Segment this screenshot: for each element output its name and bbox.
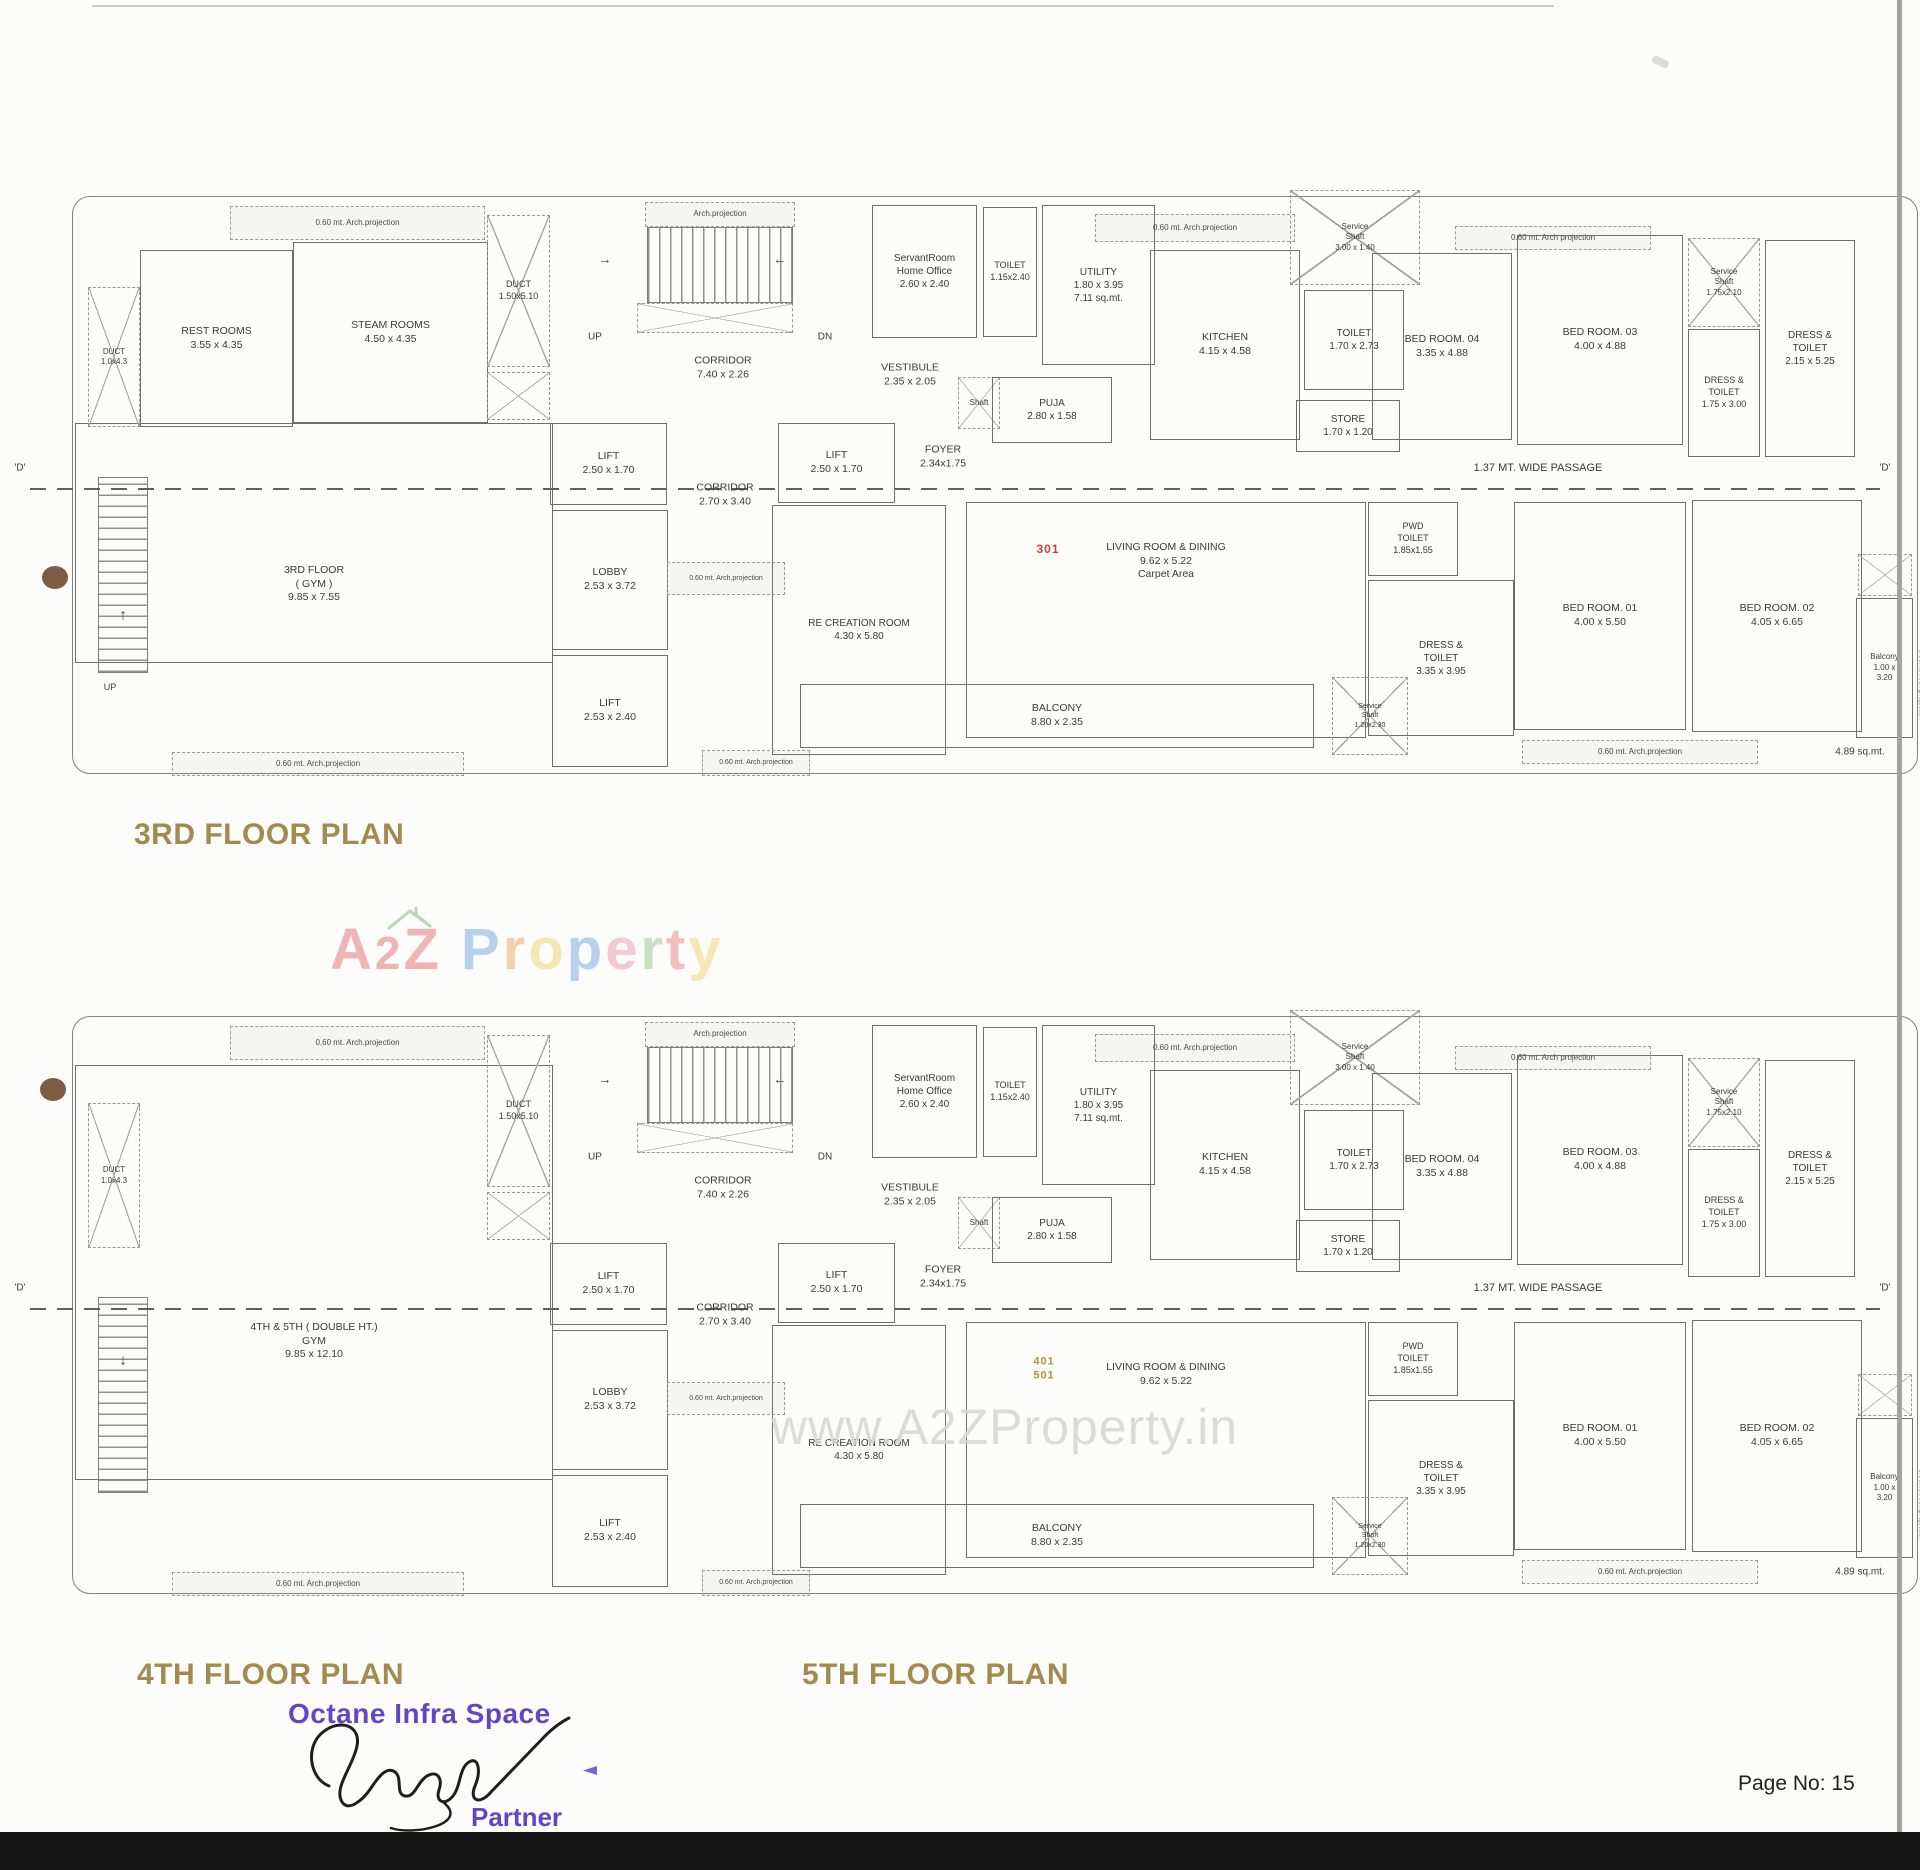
plan-4th-5th-floor-service-shaft-balcony: ServiceShaft1.20x2.30	[1332, 1497, 1408, 1575]
plan-3rd-floor-puja: PUJA2.80 x 1.58	[992, 377, 1112, 443]
plan-4th-5th-floor-balcony-main: BALCONY8.80 x 2.35	[800, 1504, 1314, 1568]
plan-4th-5th-floor-unit-numbers: 401501	[1033, 1355, 1054, 1384]
scan-hole-mark-bottom	[40, 1078, 66, 1101]
scan-edge-right	[1897, 0, 1902, 1870]
plan-3rd-floor-staircase-top	[647, 227, 793, 303]
plan-3rd-floor-corridor-lower: CORRIDOR2.70 x 3.40	[696, 481, 753, 508]
plan-3rd-floor-stair-arrow-right: →	[599, 252, 612, 269]
plan-4th-5th-floor-bed-room-01: BED ROOM. 014.00 x 5.50	[1514, 1322, 1686, 1550]
plan-3rd-floor-d-marker-left: 'D'	[14, 462, 25, 475]
plan-3rd-floor-d-marker-right: 'D'	[1879, 462, 1890, 475]
plan-3rd-floor-balcony-main: BALCONY8.80 x 2.35	[800, 684, 1314, 748]
plan-3rd-floor-service-shaft-balcony: ServiceShaft1.20x2.30	[1332, 677, 1408, 755]
plan-3rd-floor-rest-rooms: REST ROOMS3.55 x 4.35	[140, 250, 293, 427]
plan-3rd-floor-duct-left: DUCT1.0x4.3	[88, 287, 140, 427]
plan-4th-5th-floor-bed-room-04: BED ROOM. 043.35 x 4.88	[1372, 1073, 1512, 1260]
a2z-property-watermark: A2Z Property	[330, 916, 724, 983]
plan-4th-5th-floor-dress-toilet-small: DRESS &TOILET1.75 x 3.00	[1688, 1149, 1760, 1277]
plan-3rd-floor-bed-room-03: BED ROOM. 034.00 x 4.88	[1517, 235, 1683, 445]
plan-3rd-floor-stair-arrow-left: ←	[774, 252, 787, 269]
plan-4th-5th-floor-dress-toilet-right: DRESS &TOILET2.15 x 5.25	[1765, 1060, 1855, 1277]
scan-speck	[1651, 55, 1670, 69]
plan-5th-title: 5TH FLOOR PLAN	[802, 1658, 1069, 1692]
plan-4th-5th-floor-duct-mid-lower	[487, 1192, 550, 1240]
plan-3rd-floor-balcony-area-note: 4.89 sq.mt.	[1835, 746, 1884, 759]
plan-4th-5th-floor-arch-note-vertical: 0.60mt. Arch.projection	[1916, 1440, 1920, 1570]
plan-3rd-floor-dn-label: DN	[818, 331, 832, 344]
plan-3rd-floor-bed-room-01: BED ROOM. 014.00 x 5.50	[1514, 502, 1686, 730]
plan-4th-5th-floor-lobby: LOBBY2.53 x 3.72	[552, 1330, 668, 1470]
plan-4th-5th-floor-balcony-shaft	[1858, 1374, 1912, 1416]
plan-3rd-floor-bed-room-04: BED ROOM. 043.35 x 4.88	[1372, 253, 1512, 440]
plan-3rd-floor-stair-landing	[637, 303, 793, 333]
plan-4th-5th-floor-vestibule: VESTIBULE2.35 x 2.05	[881, 1181, 939, 1208]
plan-3rd-floor-stairs-left-arrow: ↑	[119, 605, 127, 625]
plan-3rd-floor-service-shaft-right: ServiceShaft1.75x2.10	[1688, 238, 1760, 327]
plan-4th-5th-floor-d-marker-left: 'D'	[14, 1282, 25, 1295]
plan-4th-5th-floor-lift-3: LIFT2.53 x 2.40	[552, 1475, 668, 1587]
plan-3rd-floor-dress-toilet-right: DRESS &TOILET2.15 x 5.25	[1765, 240, 1855, 457]
a2zproperty-url-watermark: www.A2ZProperty.in	[771, 1398, 1238, 1456]
plan-4th-5th-floor-corridor-upper: CORRIDOR7.40 x 2.26	[694, 1174, 751, 1201]
plan-3rd-floor-lift-1: LIFT2.50 x 1.70	[550, 423, 667, 505]
plan-3rd-floor-pwd-toilet: PWDTOILET1.85x1.55	[1368, 502, 1458, 576]
plan-3rd-floor-arch-strip-kitchen: 0.60 mt. Arch.projection	[1095, 214, 1295, 242]
plan-4th-5th-floor-arch-strip-lobby: 0.60 mt. Arch.projection	[667, 1382, 785, 1415]
plan-3rd-floor-servant-room: ServantRoomHome Office2.60 x 2.40	[872, 205, 977, 338]
plan-3rd-floor-lift-2: LIFT2.50 x 1.70	[778, 423, 895, 503]
plan-4th-5th-floor-servant-room: ServantRoomHome Office2.60 x 2.40	[872, 1025, 977, 1158]
plan-3rd-floor-lift-3: LIFT2.53 x 2.40	[552, 655, 668, 767]
plan-4th-5th-floor-foyer: FOYER2.34x1.75	[920, 1263, 966, 1290]
plan-4th-5th-floor-servant-toilet: TOILET1.15x2.40	[983, 1027, 1037, 1157]
plan-3rd-floor-balcony-shaft	[1858, 554, 1912, 596]
plan-4th-5th-floor-lift-1: LIFT2.50 x 1.70	[550, 1243, 667, 1325]
scan-edge-bottom-bar	[0, 1832, 1920, 1870]
plan-3rd-floor-arch-strip-nw: 0.60 mt. Arch.projection	[230, 206, 485, 240]
scan-hole-mark-top	[42, 566, 68, 589]
plan-3rd-floor-section-line	[30, 488, 1880, 490]
plan-3rd-floor-servant-toilet: TOILET1.15x2.40	[983, 207, 1037, 337]
plan-4th-5th-floor-stair-arrow-left: ←	[774, 1072, 787, 1089]
plan-3rd-floor-passage-label: 1.37 MT. WIDE PASSAGE	[1474, 461, 1603, 475]
plan-3rd-floor-arch-note-vertical: 0.60mt. Arch.projection	[1916, 620, 1920, 750]
plan-3rd-floor-kitchen: KITCHEN4.15 x 4.58	[1150, 250, 1300, 440]
plan-3rd-floor-up-label: UP	[588, 331, 602, 344]
plan-3rd-floor-vestibule: VESTIBULE2.35 x 2.05	[881, 361, 939, 388]
plan-3rd-title: 3RD FLOOR PLAN	[134, 818, 404, 852]
plan-4th-5th-floor-stairs-left	[98, 1297, 148, 1493]
scanned-floor-plan-page: 3RD FLOOR( GYM )9.85 x 7.55↑UPDUCT1.0x4.…	[0, 0, 1920, 1870]
plan-3rd-floor: 3RD FLOOR( GYM )9.85 x 7.55↑UPDUCT1.0x4.…	[60, 150, 1920, 800]
plan-4th-5th-floor-arch-strip-nw: 0.60 mt. Arch.projection	[230, 1026, 485, 1060]
plan-4th-5th-floor-service-shaft-right: ServiceShaft1.75x2.10	[1688, 1058, 1760, 1147]
plan-4th-5th-floor-duct-left: DUCT1.0x4.3	[88, 1103, 140, 1248]
plan-4th-5th-floor-arch-strip-s: 0.60 mt. Arch.projection	[702, 1570, 810, 1596]
plan-4th-5th-floor-d-marker-right: 'D'	[1879, 1282, 1890, 1295]
plan-3rd-floor-stairs-left	[98, 477, 148, 673]
plan-3rd-floor-bed-room-02: BED ROOM. 024.05 x 6.65	[1692, 500, 1862, 732]
plan-4th-5th-floor-section-line	[30, 1308, 1880, 1310]
plan-4th-5th-floor-up-label: UP	[588, 1151, 602, 1164]
plan-4th-5th-floor-bed-room-02: BED ROOM. 024.05 x 6.65	[1692, 1320, 1862, 1552]
plan-3rd-floor-lobby: LOBBY2.53 x 3.72	[552, 510, 668, 650]
plan-4th-5th-floor-arch-strip-sw: 0.60 mt. Arch.projection	[172, 1572, 464, 1596]
plan-4th-5th-floor-arch-strip-stairs: Arch.projection	[645, 1022, 795, 1047]
plan-3rd-floor-dress-toilet-small: DRESS &TOILET1.75 x 3.00	[1688, 329, 1760, 457]
plan-4th-5th-floor-arch-strip-kitchen: 0.60 mt. Arch.projection	[1095, 1034, 1295, 1062]
plan-4th-5th-floor-kitchen: KITCHEN4.15 x 4.58	[1150, 1070, 1300, 1260]
plan-4th-5th-floor-balcony-area-note: 4.89 sq.mt.	[1835, 1566, 1884, 1579]
plan-4th-5th-floor-arch-strip-se: 0.60 mt. Arch.projection	[1522, 1560, 1758, 1584]
plan-3rd-floor-unit-number: 301	[1036, 542, 1059, 558]
plan-3rd-floor-duct-mid-lower	[487, 372, 550, 420]
watermark-letters: A2Z Property	[330, 956, 724, 973]
plan-4th-5th-floor-stair-landing	[637, 1123, 793, 1153]
plan-4th-5th-floor-balcony-right: Balcony1.00 x3.20	[1856, 1418, 1913, 1558]
plan-3rd-floor-arch-strip-stairs: Arch.projection	[645, 202, 795, 227]
plan-4th-5th-floor-stairs-left-arrow: ↓	[119, 1350, 127, 1370]
plan-3rd-floor-arch-strip-sw: 0.60 mt. Arch.projection	[172, 752, 464, 776]
plan-4th-5th-floor-stair-arrow-right: →	[599, 1072, 612, 1089]
watermark-house-roof-icon	[386, 906, 436, 935]
page-number: Page No: 15	[1738, 1772, 1855, 1796]
plan-3rd-floor-arch-strip-lobby: 0.60 mt. Arch.projection	[667, 562, 785, 595]
plan-3rd-floor-balcony-right: Balcony1.00 x3.20	[1856, 598, 1913, 738]
plan-4th-5th-floor-puja: PUJA2.80 x 1.58	[992, 1197, 1112, 1263]
plan-4th-title: 4TH FLOOR PLAN	[137, 1658, 404, 1692]
plan-4th-5th-floor-lift-2: LIFT2.50 x 1.70	[778, 1243, 895, 1323]
plan-4th-5th-floor-passage-label: 1.37 MT. WIDE PASSAGE	[1474, 1281, 1603, 1295]
plan-4th-5th-floor: 4TH & 5TH ( DOUBLE HT.)GYM9.85 x 12.10↓D…	[60, 970, 1920, 1620]
plan-3rd-floor-arch-strip-se: 0.60 mt. Arch.projection	[1522, 740, 1758, 764]
plan-3rd-floor-stairs-left-up-label: UP	[104, 682, 117, 694]
plan-3rd-floor-corridor-upper: CORRIDOR7.40 x 2.26	[694, 354, 751, 381]
plan-3rd-floor-duct-mid: DUCT1.50x5.10	[487, 215, 550, 367]
plan-3rd-floor-arch-strip-s: 0.60 mt. Arch.projection	[702, 750, 810, 776]
scan-edge-top	[92, 5, 1554, 7]
plan-3rd-floor-steam-rooms: STEAM ROOMS4.50 x 4.35	[293, 242, 488, 423]
plan-4th-5th-floor-pwd-toilet: PWDTOILET1.85x1.55	[1368, 1322, 1458, 1396]
partner-signature	[295, 1702, 625, 1842]
plan-4th-5th-floor-duct-mid: DUCT1.50x5.10	[487, 1035, 550, 1187]
plan-4th-5th-floor-bed-room-03: BED ROOM. 034.00 x 4.88	[1517, 1055, 1683, 1265]
plan-3rd-floor-foyer: FOYER2.34x1.75	[920, 443, 966, 470]
plan-4th-5th-floor-corridor-lower: CORRIDOR2.70 x 3.40	[696, 1301, 753, 1328]
plan-4th-5th-floor-dn-label: DN	[818, 1151, 832, 1164]
plan-4th-5th-floor-staircase-top	[647, 1047, 793, 1123]
